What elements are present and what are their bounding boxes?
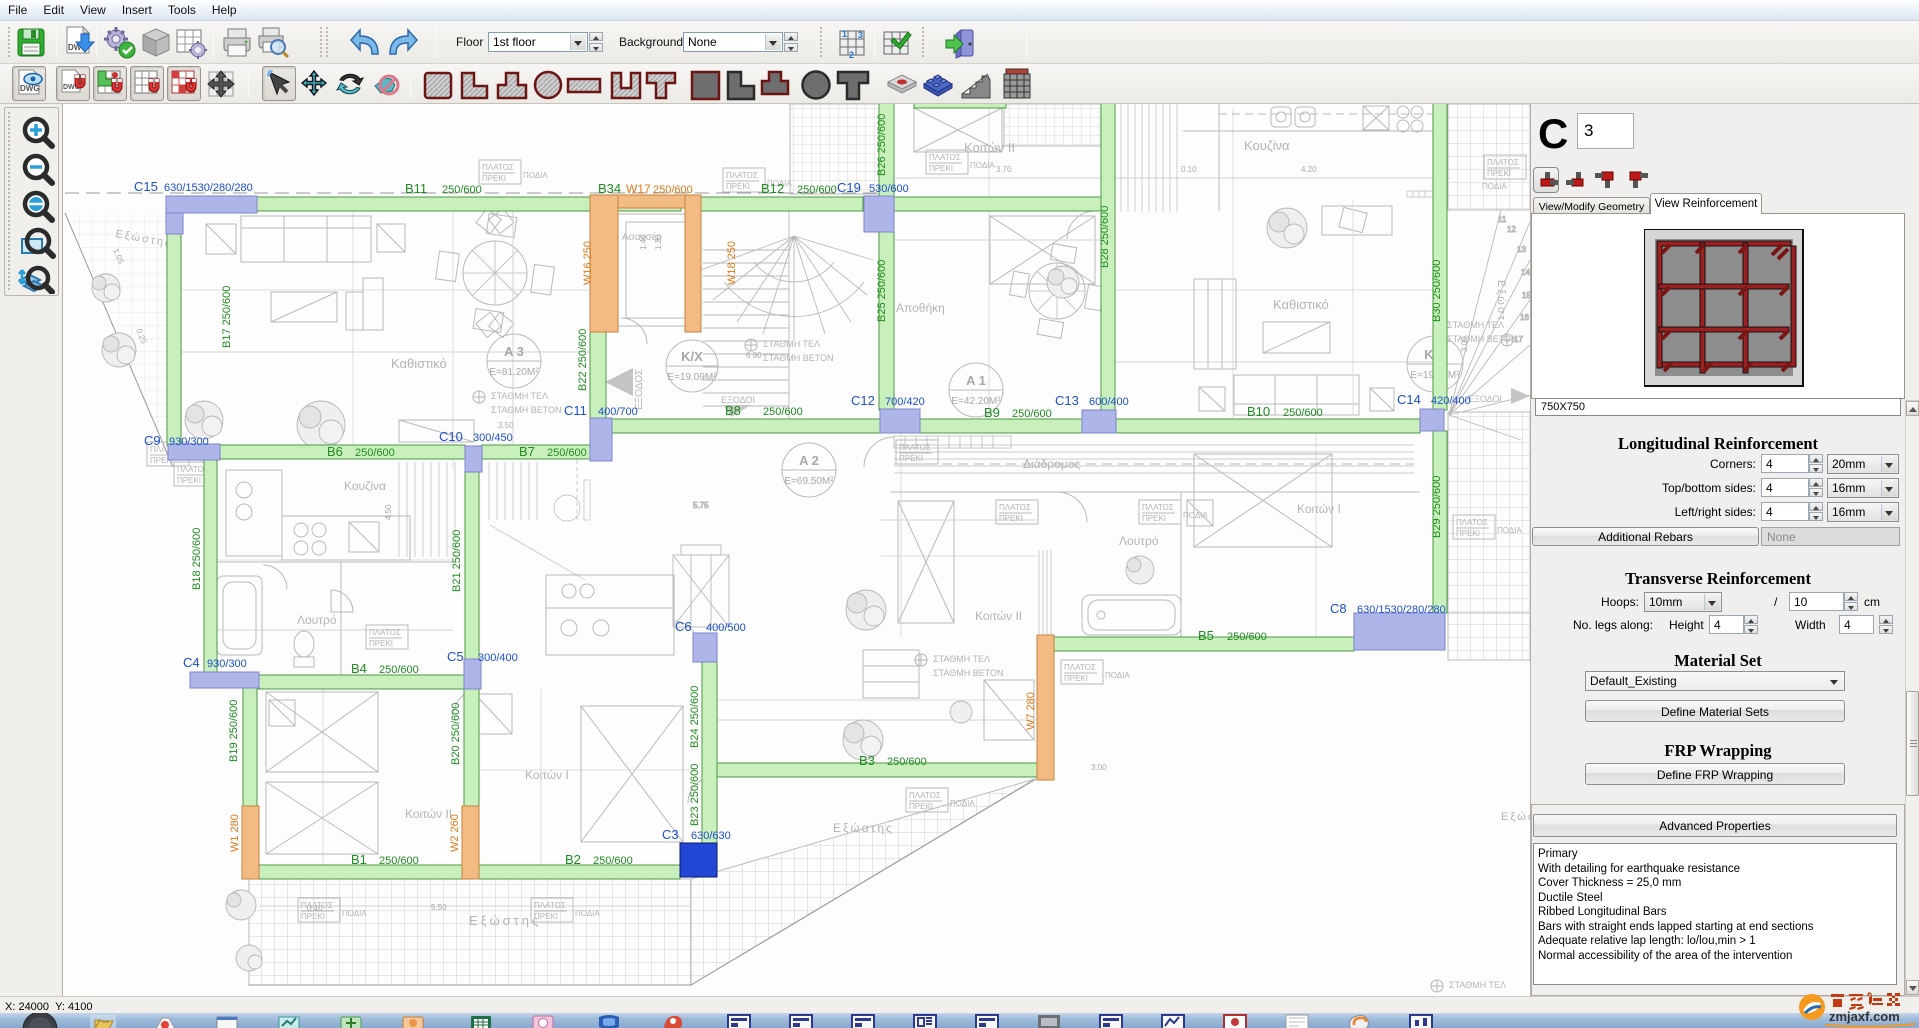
svg-text:300/450: 300/450 [473,432,513,444]
svg-text:W17: W17 [626,182,651,196]
svg-text:C13: C13 [1055,393,1079,408]
svg-text:ΠΛΑΤΟΣ: ΠΛΑΤΟΣ [899,443,931,452]
svg-text:630/1530/280/280: 630/1530/280/280 [1357,604,1446,616]
svg-text:B11: B11 [405,181,427,196]
svg-text:B21 250/600: B21 250/600 [451,530,463,592]
svg-text:ΠΛΑΤΟΣ: ΠΛΑΤΟΣ [1487,158,1519,167]
svg-text:ΠΡΕΚΙ: ΠΡΕΚΙ [177,476,201,485]
svg-text:ΠΡΕΚΙ: ΠΡΕΚΙ [726,182,750,191]
svg-text:B3: B3 [859,753,875,768]
svg-text:ΠΡΕΚΙ: ΠΡΕΚΙ [929,164,953,173]
svg-text:3.00: 3.00 [1460,336,1469,352]
svg-text:ΠΛΑΤΟΣ: ΠΛΑΤΟΣ [929,153,961,162]
svg-text:C5: C5 [447,649,464,664]
svg-text:250/600: 250/600 [887,756,927,768]
svg-text:ΕΞΟΔΟΣ: ΕΞΟΔΟΣ [634,369,645,410]
svg-text:B30 250/600: B30 250/600 [1431,260,1443,322]
svg-text:Κουζίνα: Κουζίνα [1244,138,1290,153]
svg-text:B25 250/600: B25 250/600 [876,260,888,322]
svg-text:ΠΡΕΚΙ: ΠΡΕΚΙ [899,454,923,463]
svg-text:250/600: 250/600 [442,184,482,196]
svg-text:C19: C19 [837,180,861,195]
svg-text:C3: C3 [662,827,679,842]
svg-text:ΠΟΔΙΑ: ΠΟΔΙΑ [1497,526,1522,535]
svg-text:3.00: 3.00 [1091,763,1107,772]
svg-text:ΠΟΔΙΑ: ΠΟΔΙΑ [523,171,548,180]
svg-text:B29 250/600: B29 250/600 [1431,476,1443,538]
svg-text:B28 250/600: B28 250/600 [1099,206,1111,268]
svg-text:Εξώατης: Εξώατης [833,821,894,835]
svg-text:B18 250/600: B18 250/600 [191,528,203,590]
svg-text:ΠΡΕΚΙ: ΠΡΕΚΙ [999,514,1023,523]
svg-text:0.40: 0.40 [307,904,323,913]
svg-text:Εξώστ: Εξώστ [1495,280,1507,322]
svg-text:W18 250: W18 250 [726,241,738,285]
svg-text:ΠΛΑΤΟΣ: ΠΛΑΤΟΣ [999,503,1031,512]
svg-text:300/400: 300/400 [478,652,518,664]
svg-text:ΠΡΕΚΙ: ΠΡΕΚΙ [1142,514,1166,523]
svg-text:ΠΡΕΚΙ: ΠΡΕΚΙ [909,802,933,811]
svg-text:Καθιστικό: Καθιστικό [1273,297,1329,312]
svg-text:B20 250/600: B20 250/600 [450,703,462,765]
svg-text:ΠΟΔΙΑ: ΠΟΔΙΑ [575,909,600,918]
svg-text:250/600: 250/600 [379,664,419,676]
svg-text:3.50: 3.50 [498,421,514,430]
svg-text:E=81.20M²: E=81.20M² [489,367,539,378]
svg-text:C9: C9 [144,433,161,448]
svg-text:Λουτρό: Λουτρό [297,613,337,627]
svg-text:Καθιστικό: Καθιστικό [391,356,447,371]
svg-text:W1 280: W1 280 [229,814,241,852]
svg-text:C10: C10 [439,429,463,444]
svg-text:zmjaxf.com: zmjaxf.com [1829,1009,1900,1024]
svg-text:Κοιτών II: Κοιτών II [975,609,1022,623]
svg-text:C15: C15 [134,179,158,194]
svg-text:W7 280: W7 280 [1025,692,1037,730]
svg-text:ΣΤΑΘΜΗ ΤΕΛ: ΣΤΑΘΜΗ ΤΕΛ [763,339,820,349]
svg-text:B8: B8 [725,403,741,418]
svg-text:C11: C11 [564,403,587,418]
svg-text:3: 3 [858,30,863,40]
svg-text:B22 250/600: B22 250/600 [577,329,589,391]
svg-text:Κοιτών II: Κοιτών II [405,807,452,821]
svg-text:0.10: 0.10 [1181,165,1197,174]
svg-text:530/600: 530/600 [869,183,909,195]
svg-text:1.40: 1.40 [639,234,648,250]
svg-text:3.70: 3.70 [996,165,1012,174]
svg-text:630/1530/280/280: 630/1530/280/280 [164,182,253,194]
svg-text:5.75: 5.75 [693,501,709,510]
svg-text:Κοιτών I: Κοιτών I [1297,502,1341,516]
svg-text:250/600: 250/600 [1227,631,1267,643]
svg-text:Αποθήκη: Αποθήκη [896,301,945,315]
svg-text:4.20: 4.20 [1301,165,1317,174]
svg-text:A 3: A 3 [504,344,524,359]
svg-text:ΠΟΔΙΑ: ΠΟΔΙΑ [1183,511,1208,520]
svg-text:B2: B2 [565,852,581,867]
svg-text:250/600: 250/600 [1012,408,1052,420]
svg-text:ΠΟΔΙΑ: ΠΟΔΙΑ [950,799,975,808]
svg-text:ΠΟΔΙΑ: ΠΟΔΙΑ [1482,182,1507,191]
svg-text:4.50: 4.50 [384,504,393,520]
svg-text:ΠΛΑΤΟΣ: ΠΛΑΤΟΣ [909,791,941,800]
svg-text:B5: B5 [1198,628,1214,643]
svg-text:ΠΡΕΚΙ: ΠΡΕΚΙ [1456,529,1480,538]
svg-text:DWG: DWG [20,84,40,93]
svg-text:1: 1 [842,29,847,39]
svg-text:250/600: 250/600 [653,184,693,196]
svg-text:13: 13 [1517,245,1526,254]
svg-text:E=19.09M²: E=19.09M² [667,372,717,383]
svg-text:ΣΤΑΘΜΗ ΒΕΤΟΝ: ΣΤΑΘΜΗ ΒΕΤΟΝ [763,353,834,363]
svg-text:A 2: A 2 [799,453,819,468]
svg-text:Κοιτών II: Κοιτών II [964,140,1015,155]
svg-text:ΠΛΑΤΟΣ: ΠΛΑΤΟΣ [1142,503,1174,512]
svg-text:B10: B10 [1247,404,1270,419]
svg-text:B1: B1 [351,852,367,867]
svg-text:600/400: 600/400 [1089,396,1129,408]
svg-text:ΣΤΑΘΜΗ ΤΕΛ: ΣΤΑΘΜΗ ΤΕΛ [491,391,548,401]
svg-text:ΣΤΑΘΜΗ ΒΕΤΟΝ: ΣΤΑΘΜΗ ΒΕΤΟΝ [1447,334,1518,344]
svg-text:ΕΞΟΔΟΙ: ΕΞΟΔΟΙ [1468,394,1502,404]
svg-text:B12: B12 [761,181,784,196]
svg-text:ΠΛΑΤΟΣ: ΠΛΑΤΟΣ [1456,518,1488,527]
svg-text:6 90: 6 90 [746,351,762,360]
svg-text:16: 16 [1520,313,1529,322]
svg-text:C14: C14 [1397,392,1421,407]
svg-text:ΣΤΑΘΜΗ ΤΕΛ: ΣΤΑΘΜΗ ΤΕΛ [933,654,990,664]
svg-text:250/600: 250/600 [1283,407,1323,419]
svg-text:E=69.50M²: E=69.50M² [784,476,834,487]
svg-text:250/600: 250/600 [763,406,803,418]
svg-text:2: 2 [849,50,854,60]
svg-text:930/300: 930/300 [207,658,247,670]
svg-text:B4: B4 [351,661,367,676]
svg-text:B17 250/600: B17 250/600 [221,286,233,348]
svg-text:B24 250/600: B24 250/600 [689,686,701,748]
svg-text:700/420: 700/420 [885,396,925,408]
svg-text:Εξώστ: Εξώστ [1501,811,1531,823]
svg-text:ΠΡΕΚΙ: ΠΡΕΚΙ [1487,169,1511,178]
svg-text:Κουζίνα: Κουζίνα [344,479,386,493]
svg-text:ΠΟΔΙΑ: ΠΟΔΙΑ [1105,671,1130,680]
svg-text:ΣΤΑΘΜΗ ΒΕΤΟΝ: ΣΤΑΘΜΗ ΒΕΤΟΝ [491,405,562,415]
svg-text:1.20: 1.20 [654,234,663,250]
svg-text:ΠΡΕΚΙ: ΠΡΕΚΙ [534,912,558,921]
svg-text:ΠΡΕΚΙ: ΠΡΕΚΙ [482,174,506,183]
svg-text:Διάδρομος: Διάδρομος [1023,457,1080,471]
svg-text:ΠΛΑΤΟΣ: ΠΛΑΤΟΣ [482,163,514,172]
svg-text:ΠΡΕΚΙ: ΠΡΕΚΙ [301,912,325,921]
svg-text:B6: B6 [327,444,343,459]
svg-text:250/600: 250/600 [547,447,587,459]
svg-text:B7: B7 [519,444,535,459]
svg-text:ΠΛΑΤΟΣ: ΠΛΑΤΟΣ [369,628,401,637]
svg-text:250/600: 250/600 [797,184,837,196]
svg-text:400/700: 400/700 [598,406,638,418]
svg-text:630/630: 630/630 [691,830,731,842]
svg-text:ΠΛΑΤΟΣ: ΠΛΑΤΟΣ [1064,663,1096,672]
svg-text:C6: C6 [675,619,692,634]
svg-text:ΣΤΑΘΜΗ ΤΕΛ: ΣΤΑΘΜΗ ΤΕΛ [1447,320,1504,330]
svg-text:ΠΡΕΚΙ: ΠΡΕΚΙ [369,639,393,648]
svg-text:C12: C12 [851,393,875,408]
svg-text:B9: B9 [984,405,1000,420]
svg-text:C8: C8 [1330,601,1347,616]
svg-text:Λουτρό: Λουτρό [1119,534,1159,548]
svg-text:ΠΡΕΚΙ: ΠΡΕΚΙ [1064,674,1088,683]
svg-text:ΠΟΔΙΑ: ΠΟΔΙΑ [342,909,367,918]
svg-text:250/600: 250/600 [355,447,395,459]
svg-text:K/X: K/X [681,349,703,364]
svg-text:930/300: 930/300 [169,436,209,448]
svg-text:A 1: A 1 [966,373,986,388]
svg-text:12: 12 [1507,225,1516,234]
svg-text:ΠΛΑΤΟΣ: ΠΛΑΤΟΣ [534,901,566,910]
svg-text:11: 11 [1498,215,1507,224]
svg-text:420/400: 420/400 [1431,395,1471,407]
svg-text:ΣΤΑΘΜΗ ΒΕΤΟΝ: ΣΤΑΘΜΗ ΒΕΤΟΝ [933,668,1004,678]
svg-text:B26 250/600: B26 250/600 [876,114,888,176]
svg-text:ΠΛΑΤΟΣ: ΠΛΑΤΟΣ [726,171,758,180]
svg-text:250/600: 250/600 [593,855,633,867]
svg-text:ΣΤΑΘΜΗ ΤΕΛ: ΣΤΑΘΜΗ ΤΕΛ [1449,980,1506,990]
svg-text:W16 250: W16 250 [582,241,594,285]
svg-text:B19 250/600: B19 250/600 [228,700,240,762]
svg-text:250/600: 250/600 [379,855,419,867]
svg-text:Κοιτών I: Κοιτών I [525,768,569,782]
svg-text:400/500: 400/500 [706,622,746,634]
svg-text:ΠΟΔΙΑ: ΠΟΔΙΑ [970,161,995,170]
svg-text:W2 260: W2 260 [449,814,461,852]
svg-text:5.50: 5.50 [431,903,447,912]
svg-text:C4: C4 [183,655,200,670]
svg-text:B23 250/600: B23 250/600 [689,764,701,826]
svg-text:Εξώστης: Εξώστης [469,913,541,928]
svg-text:B34: B34 [598,181,621,196]
